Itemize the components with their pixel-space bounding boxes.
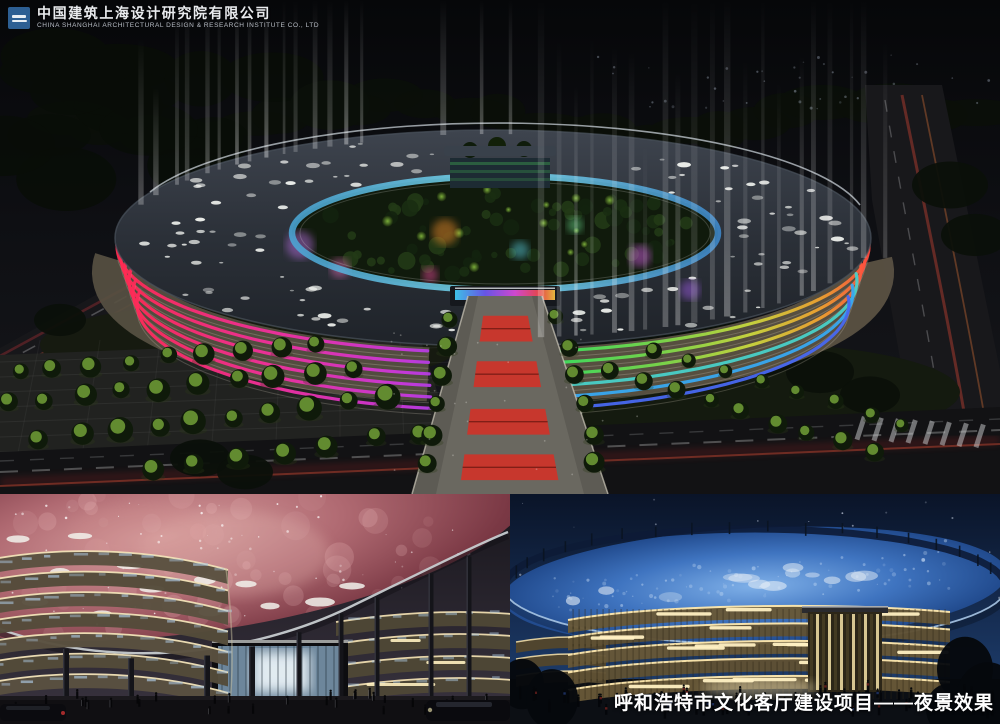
company-logo: 中国建筑上海设计研究院有限公司 CHINA SHANGHAI ARCHITECT… [8,6,319,30]
project-caption: 呼和浩特市文化客厅建设项目——夜景效果 [614,688,994,715]
parked-car-left [0,704,66,721]
company-name-cn: 中国建筑上海设计研究院有限公司 [37,6,319,20]
parked-car-right [426,700,510,721]
central-glass-hall [802,606,888,692]
company-name: 中国建筑上海设计研究院有限公司 CHINA SHANGHAI ARCHITECT… [37,6,319,30]
company-name-en: CHINA SHANGHAI ARCHITECTURAL DESIGN & RE… [37,23,319,30]
street-view-nebula-canopy [0,494,510,724]
presentation-board: 中国建筑上海设计研究院有限公司 CHINA SHANGHAI ARCHITECT… [0,0,1000,724]
cscec-logo-mark-icon [8,7,30,29]
main-aerial-rendering [0,0,1000,494]
